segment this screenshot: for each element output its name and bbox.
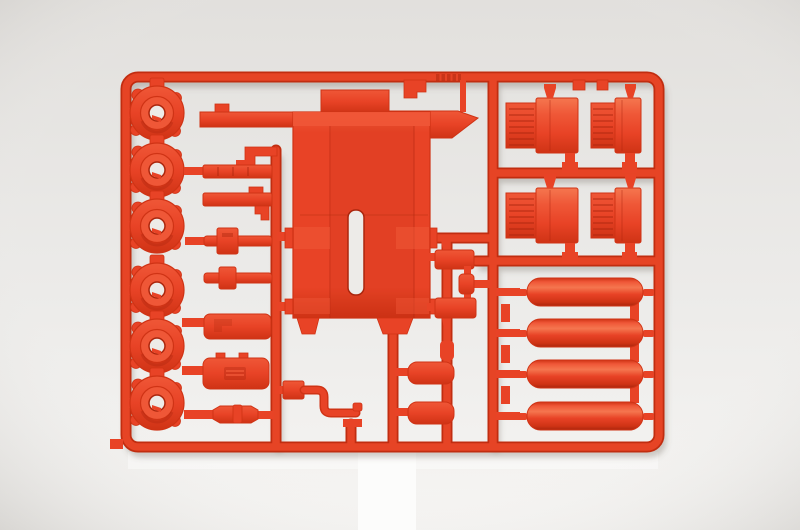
tie-bar-2 — [203, 193, 272, 206]
plate-slot — [348, 210, 364, 295]
pad-part-2 — [408, 402, 454, 424]
air-tank-4 — [517, 402, 654, 430]
air-tank-1 — [517, 278, 654, 306]
sprue-photo-canvas — [0, 0, 800, 530]
corner-flash — [110, 439, 123, 449]
plate-left-flange — [200, 112, 294, 127]
wing-gate — [460, 80, 466, 112]
plate-top-tab — [321, 90, 389, 113]
tie-bar-1 — [203, 165, 272, 178]
white-strip — [358, 447, 416, 530]
runner-tab-2 — [597, 80, 608, 90]
runner-tab-1 — [573, 80, 585, 90]
air-tank-2 — [517, 319, 654, 347]
plate-foot-right — [377, 318, 413, 334]
axle-part-2 — [204, 273, 272, 283]
pad-part-1 — [408, 362, 454, 384]
photo-plastic-sprue — [0, 0, 800, 530]
block-part-2 — [435, 298, 476, 318]
clamp-part — [459, 274, 474, 294]
air-tank-3 — [517, 360, 654, 388]
